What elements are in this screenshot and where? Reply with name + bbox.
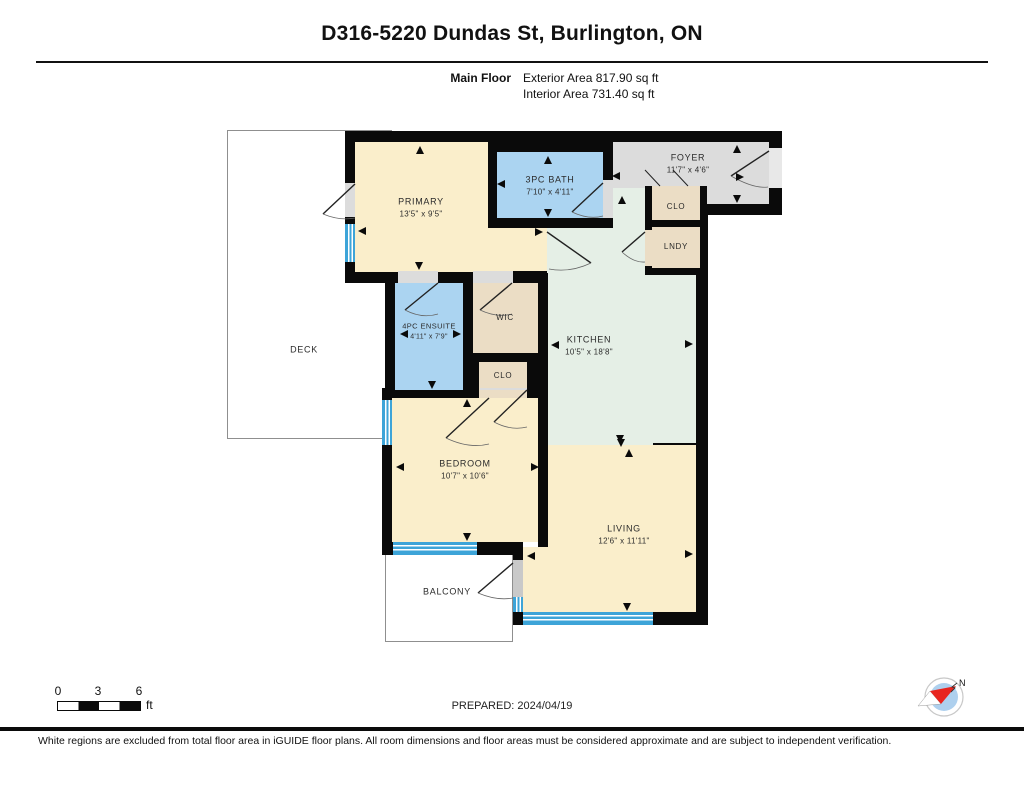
page-title: D316-5220 Dundas St, Burlington, ON	[0, 22, 1024, 46]
room-dims: 7'10" x 4'11"	[526, 187, 575, 199]
room-dims: 4'11" x 7'9"	[402, 332, 456, 342]
room-label-balcony: BALCONY	[423, 585, 471, 598]
closet-hall-opening	[479, 390, 527, 398]
wall-segment	[488, 218, 613, 228]
wall-segment	[538, 273, 548, 547]
room-label-clo-foyer: CLO	[667, 201, 686, 213]
room-label-bath: 3PC BATH 7'10" x 4'11"	[526, 174, 575, 199]
room-label-living: LIVING 12'6" x 11'11"	[598, 523, 649, 548]
room-label-bedroom: BEDROOM 10'7" x 10'6"	[439, 458, 490, 483]
room-dims: 12'6" x 11'11"	[598, 536, 649, 548]
exterior-area: Exterior Area 817.90 sq ft	[523, 71, 658, 85]
room-label-lndy: LNDY	[664, 241, 688, 253]
room-dims: 11'7" x 4'6"	[667, 165, 709, 177]
room-name: CLO	[667, 201, 686, 213]
room-name: 3PC BATH	[526, 174, 575, 187]
floorplan-page: D316-5220 Dundas St, Burlington, ON Main…	[0, 0, 1024, 791]
room-dims: 10'7" x 10'6"	[439, 471, 490, 483]
closet-foyer-opening	[652, 186, 700, 194]
compass-north-label: N	[959, 678, 966, 688]
interior-area: Interior Area 731.40 sq ft	[523, 87, 654, 101]
room-label-wic: WIC	[496, 312, 514, 324]
room-name: CLO	[494, 370, 513, 382]
room-name: LNDY	[664, 241, 688, 253]
room-name: PRIMARY	[398, 196, 444, 209]
room-dims: 13'5" x 9'5"	[398, 209, 444, 221]
wall-segment	[345, 131, 782, 142]
living-floor-lower	[523, 547, 696, 612]
window	[382, 400, 392, 445]
room-name: KITCHEN	[565, 334, 613, 347]
room-name: WIC	[496, 312, 514, 324]
floor-label: Main Floor	[300, 71, 511, 85]
room-name: 4PC ENSUITE	[402, 321, 456, 332]
ensuite-door-opening	[398, 271, 438, 283]
deck-door-opening	[345, 183, 355, 217]
wic-door-opening	[473, 271, 513, 283]
room-label-deck: DECK	[290, 343, 318, 356]
room-name: FOYER	[667, 152, 709, 165]
wall-segment	[345, 131, 355, 183]
window	[513, 597, 523, 612]
window	[345, 224, 355, 262]
room-label-clo-hall: CLO	[494, 370, 513, 382]
room-dims: 10'5" x 18'8"	[565, 347, 613, 359]
entry-door-opening	[769, 148, 782, 188]
room-label-ensuite: 4PC ENSUITE 4'11" x 7'9"	[402, 321, 456, 342]
room-label-foyer: FOYER 11'7" x 4'6"	[667, 152, 709, 177]
wall-segment	[702, 204, 782, 215]
scale-tick: 0	[55, 684, 62, 698]
balcony-slider-panel	[513, 560, 523, 597]
scale-tick: 6	[136, 684, 143, 698]
header-divider	[36, 61, 988, 63]
scale-tick: 3	[95, 684, 102, 698]
room-name: BEDROOM	[439, 458, 490, 471]
window	[523, 612, 653, 625]
room-label-kitchen: KITCHEN 10'5" x 18'8"	[565, 334, 613, 359]
wall-segment	[345, 217, 355, 224]
window	[393, 542, 477, 555]
hallway-floor	[488, 228, 547, 271]
wall-segment	[488, 142, 613, 152]
footer-divider	[0, 727, 1024, 731]
room-name: BALCONY	[423, 585, 471, 598]
room-name: LIVING	[598, 523, 649, 536]
bath-door-opening	[603, 180, 613, 218]
prepared-date: PREPARED: 2024/04/19	[0, 700, 1024, 712]
room-label-primary: PRIMARY 13'5" x 9'5"	[398, 196, 444, 221]
room-name: DECK	[290, 343, 318, 356]
laundry-door-opening	[645, 230, 653, 266]
wall-segment	[488, 142, 497, 228]
footer-disclaimer: White regions are excluded from total fl…	[38, 735, 998, 747]
